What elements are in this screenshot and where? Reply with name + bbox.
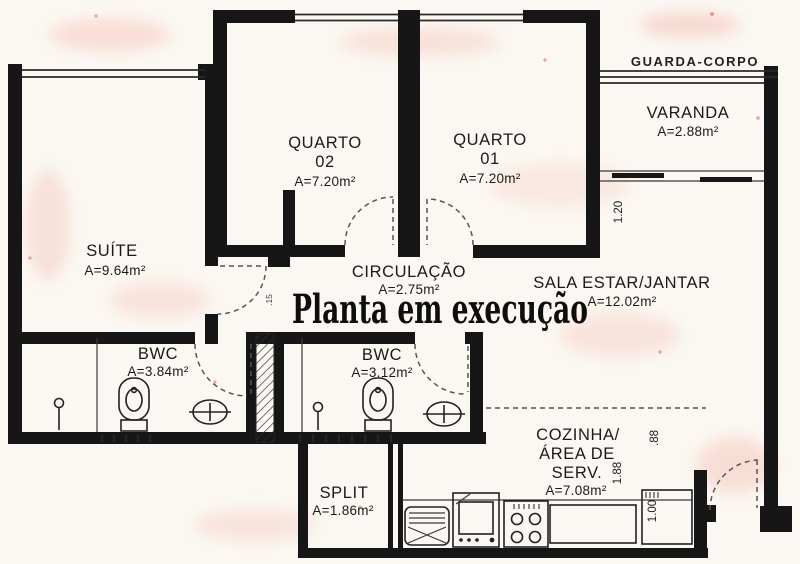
sink-icon (423, 402, 465, 426)
dimension-1-20: 1.20 (613, 201, 625, 223)
kitchen-sink-icon (405, 507, 449, 545)
suite-window (22, 70, 205, 77)
dimension-15: .15 (264, 294, 274, 306)
floor-plan-page: GUARDA-CORPO VARANDA A=2.88m² QUARTO 02 … (0, 0, 800, 564)
room-area-quarto02: A=7.20m² (294, 174, 356, 189)
counter-section (550, 505, 636, 543)
room-number-quarto02: 02 (315, 153, 335, 171)
stove-oven-icon (453, 493, 499, 547)
room-label-suite: SUÍTE (86, 241, 138, 260)
room-label-quarto02: QUARTO (288, 134, 362, 152)
sink-icon (189, 400, 231, 424)
bwc1-door-arc (195, 344, 251, 396)
bwc2-door-arc (415, 344, 468, 394)
room-label-cozinha-1: COZINHA/ (536, 426, 620, 444)
room-label-quarto01: QUARTO (453, 131, 527, 149)
room-area-varanda: A=2.88m² (657, 124, 719, 139)
room-area-quarto01: A=7.20m² (459, 171, 521, 186)
dimension-1-00: 1.00 (647, 500, 659, 522)
dimension-1-88: 1.88 (612, 462, 624, 484)
room-label-bwc2: BWC (362, 346, 402, 364)
room-label-circulacao: CIRCULAÇÃO (352, 261, 466, 281)
room-area-sala: A=12.02m² (587, 294, 656, 309)
suite-door-arc (218, 266, 266, 314)
room-number-quarto01: 01 (480, 150, 500, 168)
room-label-cozinha-3: SERV. (552, 464, 603, 482)
guarda-corpo-label: GUARDA-CORPO (631, 54, 759, 69)
room-area-bwc2: A=3.12m² (351, 365, 413, 380)
room-label-cozinha-2: ÁREA DE (539, 444, 615, 463)
guard-rail (600, 71, 778, 83)
toilet-icon (119, 378, 149, 431)
room-area-split: A=1.86m² (312, 503, 374, 518)
duct-shaft-hatch (256, 334, 274, 442)
shower-icon (314, 403, 323, 431)
room-area-cozinha: A=7.08m² (545, 483, 607, 498)
dimension-88: .88 (649, 430, 661, 446)
watermark-text: Planta em execução (292, 286, 588, 333)
cooktop-icon (504, 501, 548, 547)
room-label-split: SPLIT (320, 484, 369, 502)
quarto01-window (420, 15, 523, 21)
floor-plan-drawing: GUARDA-CORPO VARANDA A=2.88m² QUARTO 02 … (0, 0, 800, 564)
room-area-suite: A=9.64m² (84, 263, 146, 278)
room-area-bwc1: A=3.84m² (127, 364, 189, 379)
shower-icon (55, 399, 64, 431)
quarto02-window (295, 15, 398, 21)
room-label-varanda: VARANDA (647, 104, 730, 122)
quarto01-door-arc (427, 199, 473, 245)
quarto02-door-arc (345, 197, 393, 245)
room-label-bwc1: BWC (138, 345, 178, 363)
toilet-icon (363, 378, 393, 431)
